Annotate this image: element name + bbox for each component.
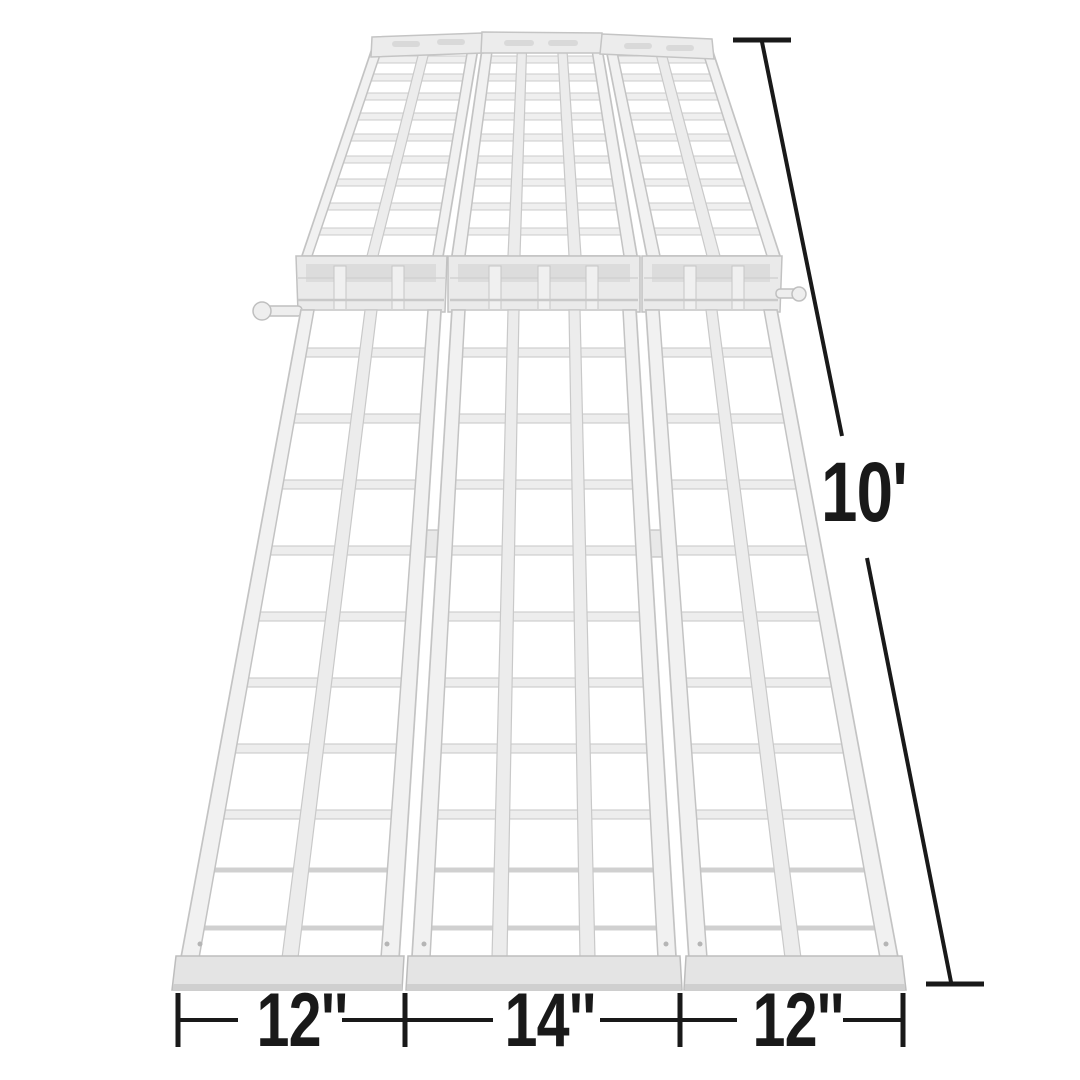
top-end-caps-shape xyxy=(548,40,578,46)
mounting-holes-shape xyxy=(664,942,669,947)
lower-middle-panel-rungs-shape xyxy=(150,414,950,423)
hinge-pin-left xyxy=(253,302,302,320)
width-dimension-label-right: 12'' xyxy=(752,978,843,1063)
width-dimension-label-left: 12'' xyxy=(256,978,347,1063)
top-end-caps-shape xyxy=(437,39,465,45)
hinge-beam-left-shape xyxy=(306,264,436,282)
top-end-caps-shape xyxy=(600,34,714,59)
hinge-beam-left xyxy=(296,256,447,312)
hinge-beam-middle-shape xyxy=(586,266,598,312)
top-end-caps-shape xyxy=(504,40,534,46)
height-dimension-label: 10' xyxy=(821,445,907,539)
lower-middle-panel-rungs-shape xyxy=(150,348,950,357)
dimension-labels-shape: 12'' xyxy=(752,978,843,1063)
mounting-holes-shape xyxy=(385,942,390,947)
upper-section xyxy=(290,32,800,256)
dimension-labels-shape: 12'' xyxy=(256,978,347,1063)
top-end-caps-shape xyxy=(666,45,694,51)
lower-section xyxy=(150,310,950,990)
mounting-holes-shape xyxy=(198,942,203,947)
dimension-labels-shape: 14'' xyxy=(504,978,595,1063)
width-dimension-label-middle: 14'' xyxy=(504,978,595,1063)
hinge-beam-right-shape xyxy=(652,264,770,282)
top-end-caps-shape xyxy=(481,32,603,53)
upper-middle-panel-rungs-shape xyxy=(290,56,800,63)
hinge-pin-right-shape xyxy=(792,287,806,301)
hinge-pin-left-shape xyxy=(253,302,271,320)
mounting-holes-shape xyxy=(422,942,427,947)
hinge-beam-right-shape xyxy=(732,266,744,312)
hinge-beam-left-shape xyxy=(392,266,404,312)
hinge-beam-middle xyxy=(448,256,640,312)
dimension-labels-shape: 10' xyxy=(821,445,907,539)
mounting-holes-shape xyxy=(884,942,889,947)
ramp-dimension-figure: 10' 12'' 14'' 12'' xyxy=(0,0,1080,1080)
hinge-beam-right-shape xyxy=(684,266,696,312)
hinge-beam-middle-shape xyxy=(489,266,501,312)
top-end-caps-shape xyxy=(624,43,652,49)
product-dimension-image: 10' 12'' 14'' 12'' xyxy=(0,0,1080,1080)
hinge-beam-right xyxy=(642,256,782,312)
hinge-beam-middle-shape xyxy=(538,266,550,312)
top-end-caps-shape xyxy=(392,41,420,47)
hinge-beam-left-shape xyxy=(334,266,346,312)
top-end-caps-shape xyxy=(371,33,483,57)
mounting-holes-shape xyxy=(698,942,703,947)
